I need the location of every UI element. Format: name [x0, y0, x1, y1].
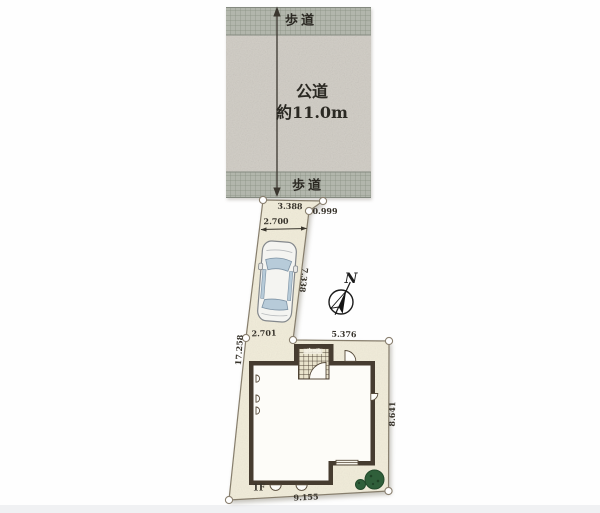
west-window-1 — [256, 375, 260, 382]
boundary-marker — [385, 337, 392, 344]
dim-upper-west: 2.701 — [251, 329, 276, 338]
site-plan-drawing — [0, 0, 600, 513]
boundary-marker — [385, 487, 392, 494]
dim-top-edge: 3.388 — [277, 202, 302, 210]
site-plan-page: 歩道 公道 約11.0m 歩道 3.388 0.999 2.700 7.338 … — [0, 0, 600, 513]
boundary-marker — [259, 196, 266, 203]
sidewalk-top-label: 歩道 — [285, 15, 317, 28]
tree-small — [356, 480, 366, 490]
road-name-text: 公道 — [276, 82, 348, 103]
dim-east-boundary: 8.641 — [388, 401, 396, 426]
tree-large — [365, 470, 384, 489]
car-mirror-left — [258, 263, 262, 270]
boundary-marker — [319, 197, 326, 204]
floor-label: 1F — [253, 485, 266, 494]
boundary-marker — [225, 496, 232, 503]
dim-west-boundary: 17.258 — [234, 334, 244, 365]
boundary-marker — [289, 336, 296, 343]
scan-artifact-band — [0, 505, 600, 513]
dim-south-boundary: 9.155 — [293, 492, 318, 501]
dim-driveway-length: 7.338 — [299, 267, 310, 293]
road-name-label: 公道 約11.0m — [276, 82, 348, 124]
car-mirror-right — [293, 266, 297, 273]
dim-corner-cut: 0.999 — [312, 207, 337, 215]
west-window-2 — [256, 395, 260, 402]
porch-label: ポーチ — [305, 348, 320, 355]
dim-upper-east: 5.376 — [331, 330, 356, 338]
road-width-text: 約11.0m — [276, 103, 348, 124]
sidewalk-bottom-label: 歩道 — [292, 180, 324, 193]
compass-north-label: N — [345, 271, 358, 287]
west-window-3 — [256, 407, 260, 414]
dim-driveway-width: 2.700 — [263, 217, 288, 225]
